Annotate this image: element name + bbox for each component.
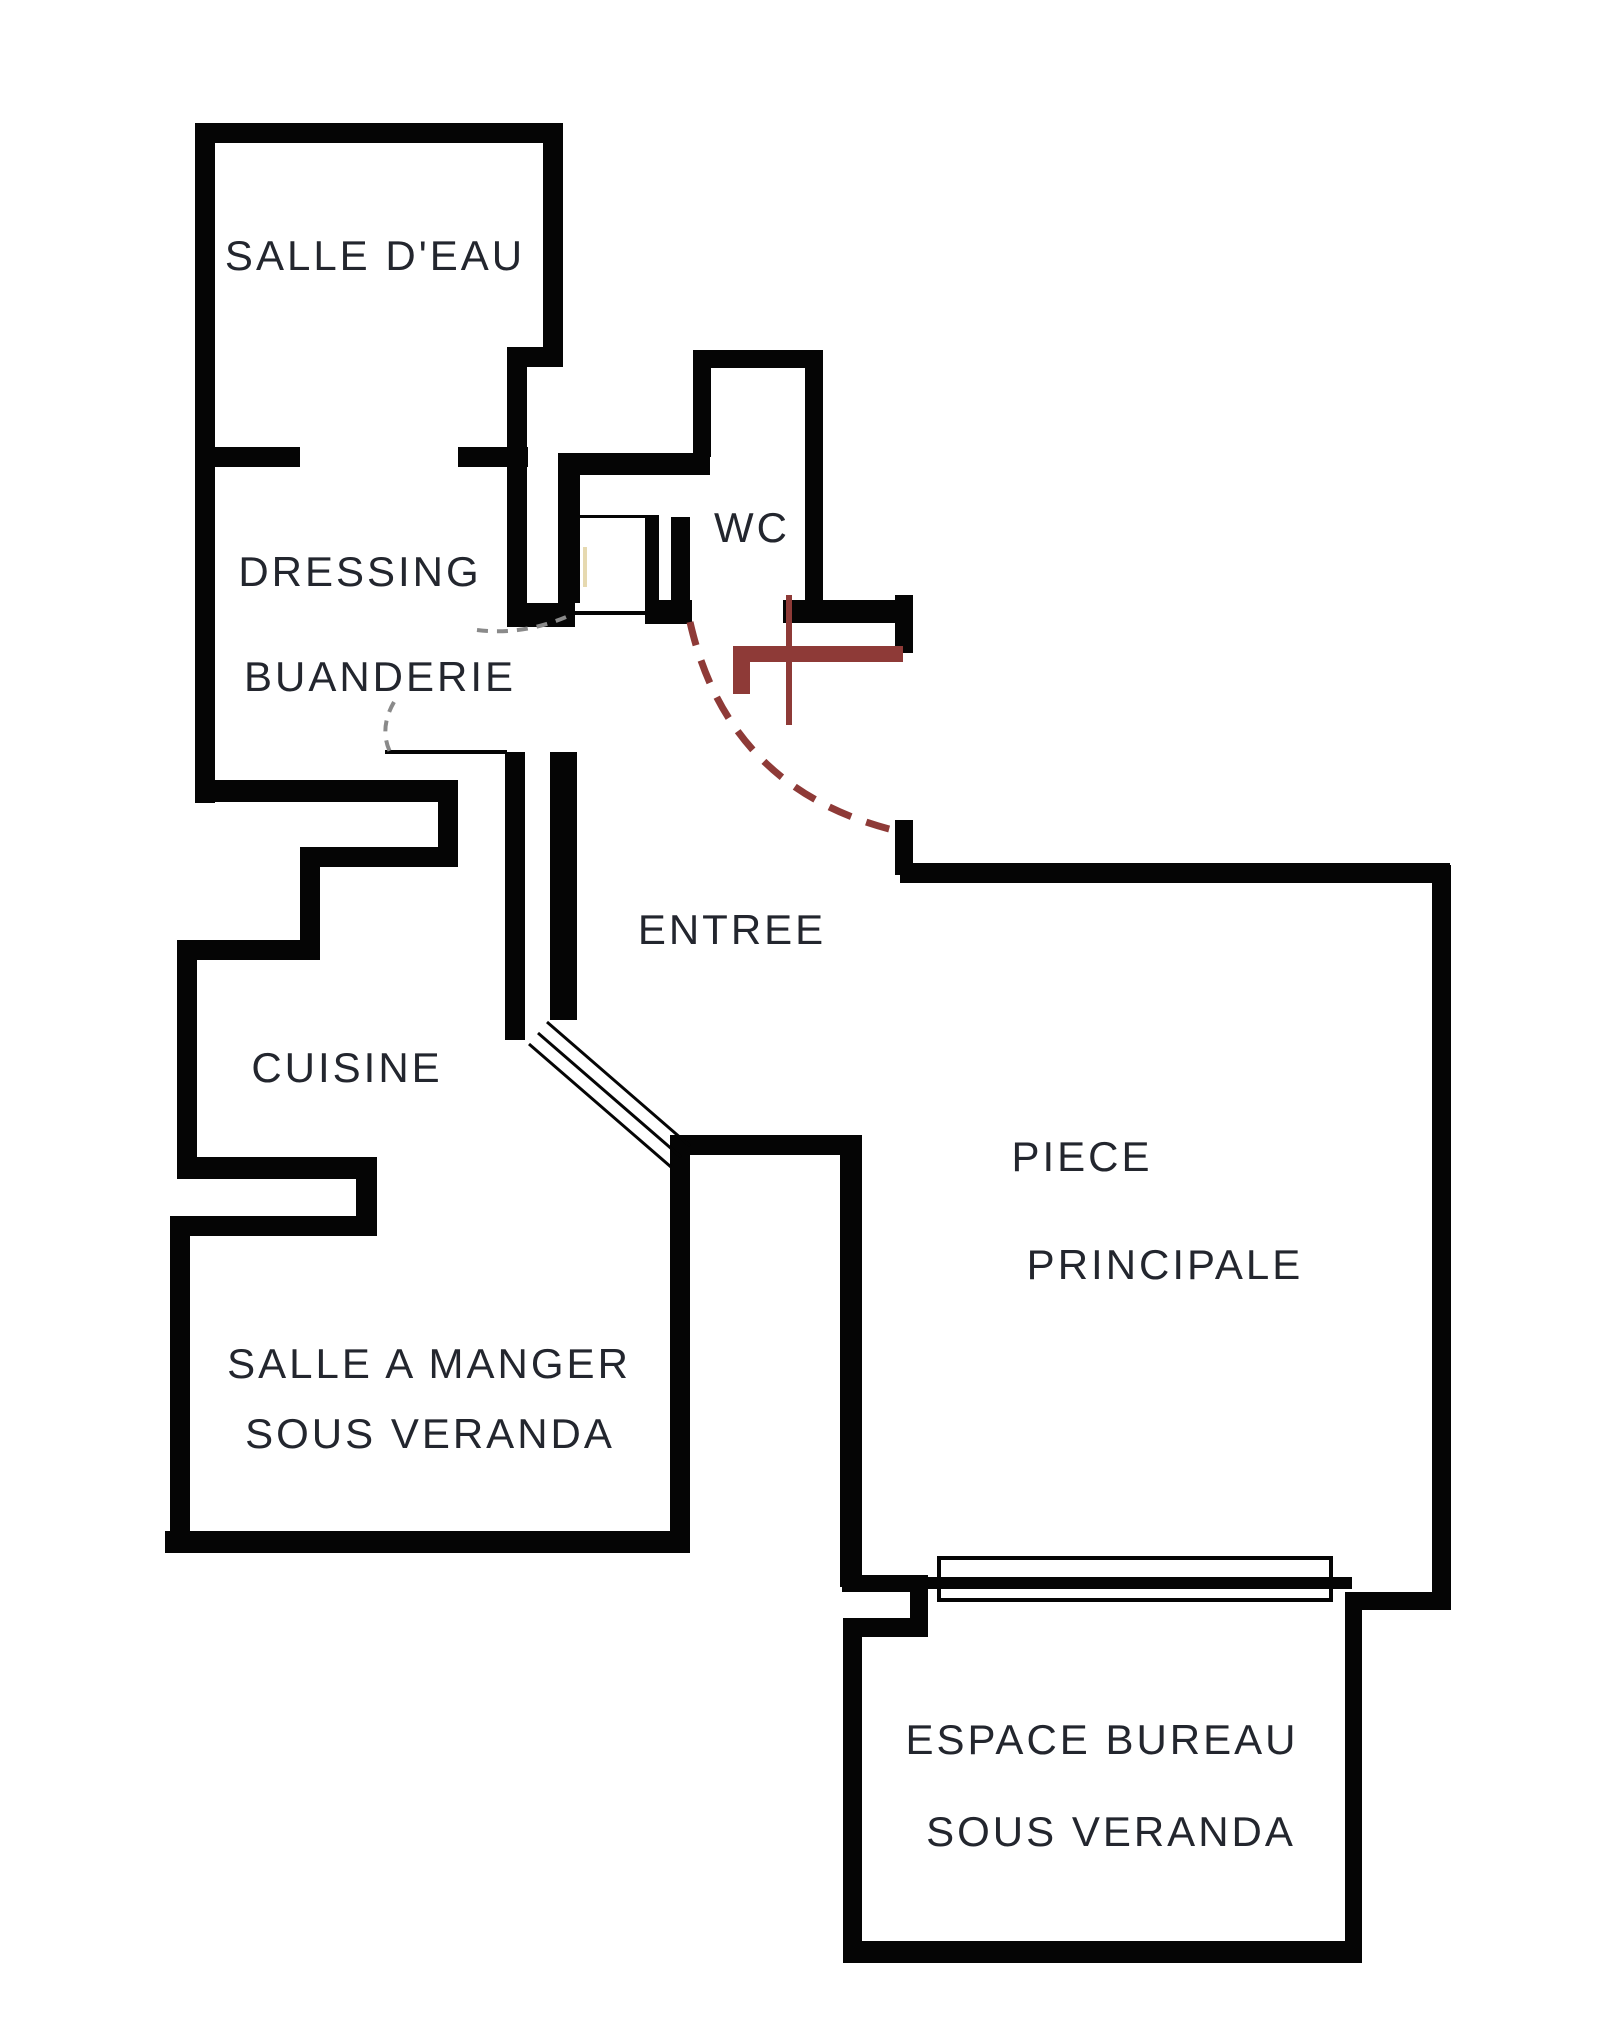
door-symbols-layer [0,0,1600,2043]
room-label-salle-deau: SALLE D'EAU [225,232,525,280]
entry-door-leaf [733,646,903,662]
room-label-piece-principale-line2: PRINCIPALE [1027,1241,1304,1289]
entry-door-axis-line [786,595,792,725]
room-label-entree: ENTREE [638,906,826,954]
room-label-cuisine: CUISINE [251,1044,442,1092]
room-label-wc: WC [714,504,790,552]
floor-plan: SALLE D'EAU DRESSING BUANDERIE WC ENTREE… [0,0,1600,2043]
buanderie-door-swing [385,702,394,752]
dressing-door-swing [477,614,573,631]
entry-door-leaf-end [733,646,750,694]
room-label-dressing: DRESSING [238,548,481,596]
room-label-buanderie: BUANDERIE [244,653,516,701]
room-label-espace-bureau-line1: ESPACE BUREAU [906,1716,1299,1764]
room-label-piece-principale-line1: PIECE [1011,1133,1152,1181]
room-label-espace-bureau-line2: SOUS VERANDA [926,1808,1296,1856]
room-label-salle-a-manger-line2: SOUS VERANDA [245,1410,615,1458]
cuisine-door-diagonal-lines [529,1022,690,1167]
room-label-salle-a-manger-line1: SALLE A MANGER [227,1340,631,1388]
